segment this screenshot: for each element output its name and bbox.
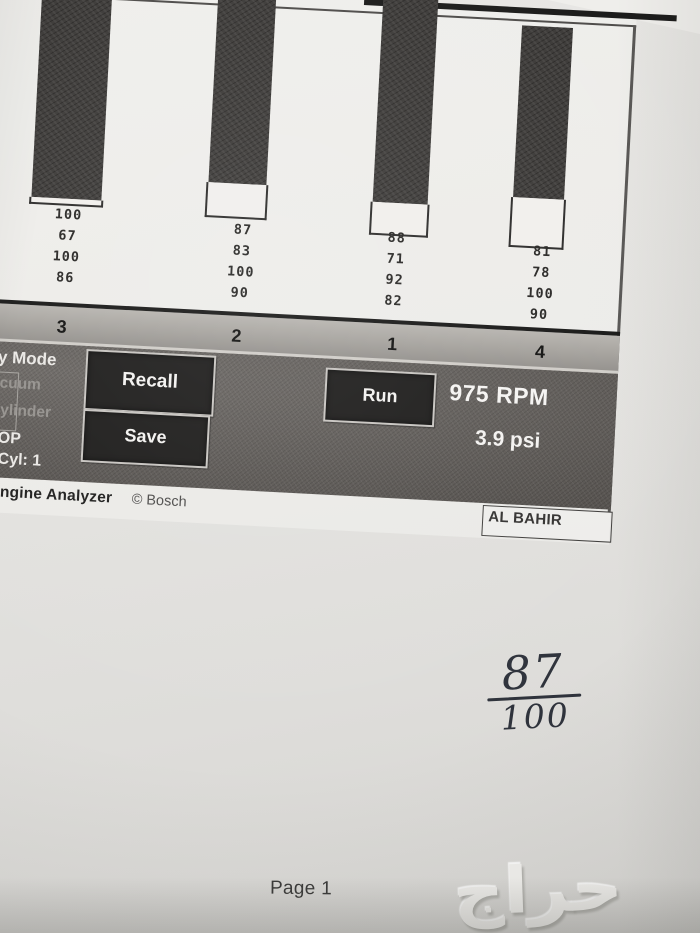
bar-remainder [205, 182, 269, 220]
cylinder-2-bar [207, 0, 278, 220]
status-op-label: OP [0, 429, 21, 448]
mode-option-vacuum: cuum [0, 375, 41, 395]
display-mode-label: y Mode [0, 347, 57, 370]
values-column-cyl2: 87 83 100 90 [201, 218, 281, 306]
values-column-cyl3: 100 67 100 86 [27, 203, 107, 291]
printed-analyzer-screenshot: 100 67 100 86 87 83 100 90 88 71 92 82 8… [0, 0, 699, 666]
mode-option-cylinder: ylinder [0, 402, 51, 423]
cylinder-3-bar [31, 0, 114, 208]
bosch-copyright: © Bosch [131, 492, 187, 511]
handwritten-score: 87 100 [476, 647, 592, 737]
handwritten-numerator: 87 [476, 647, 590, 697]
values-column-cyl1: 88 71 92 82 [355, 226, 435, 314]
haraj-watermark: حراج [452, 841, 700, 933]
bar-fill [208, 0, 277, 185]
handwritten-denominator: 100 [478, 697, 592, 737]
compression-value: 90 [201, 281, 278, 306]
pressure-readout: 3.9 psi [320, 418, 541, 453]
save-button[interactable]: Save [81, 409, 211, 469]
cylinder-4-bar [510, 25, 573, 249]
page-number: Page 1 [270, 878, 332, 901]
compression-value: 86 [27, 266, 104, 291]
photo-of-printed-engine-report: 100 67 100 86 87 83 100 90 88 71 92 82 8… [0, 0, 700, 933]
status-cylinder-label: Cyl: 1 [0, 451, 42, 471]
compression-value: 90 [500, 303, 577, 328]
al-bahir-stamp-text: AL BAHIR [483, 506, 612, 532]
compression-value: 82 [355, 289, 432, 314]
values-column-cyl4: 81 78 100 90 [500, 240, 580, 328]
bar-fill [31, 0, 113, 201]
bar-fill [513, 25, 573, 199]
recall-button[interactable]: Recall [83, 349, 216, 417]
